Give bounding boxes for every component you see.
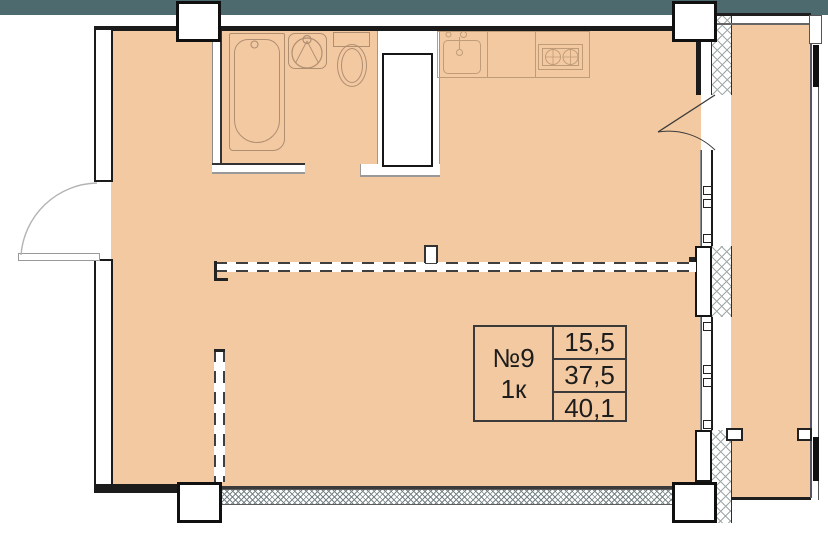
balcony-bottom-wall (731, 497, 811, 500)
balcony-top-wall (711, 13, 811, 16)
bathtub (234, 39, 280, 143)
counter-divider (535, 31, 536, 78)
window-sash-icon (703, 186, 712, 195)
toilet-bowl-inner (341, 48, 363, 83)
balcony-corner-post (809, 15, 822, 44)
area-general: 37,5 (554, 360, 625, 393)
entry-door-leaf (18, 253, 100, 261)
left-wall-upper (94, 28, 113, 182)
window-upper (701, 150, 713, 246)
entry-door-arc (21, 183, 97, 255)
wall-pylon-lower (695, 430, 712, 482)
window-sash-icon (703, 234, 712, 243)
unit-number: №9 (492, 343, 534, 374)
partition-end-cap-horizontal (214, 278, 228, 281)
bathroom-bottom-wall (212, 163, 305, 174)
partition-top-cap (214, 349, 225, 352)
bottom-wall-hatched (222, 489, 675, 505)
dashed-partition-horizontal (215, 262, 696, 272)
dashed-partition-vertical (214, 350, 225, 482)
window-sash-icon (703, 322, 712, 331)
column-bottom-left (177, 482, 222, 523)
vent-shaft (382, 53, 433, 167)
unit-id-cell: №9 1к (475, 327, 554, 420)
area-living: 15,5 (554, 327, 625, 360)
column-top-left (176, 1, 221, 42)
balcony-window-bar-bottom (813, 437, 819, 481)
glazing-tab-left (726, 428, 743, 441)
bottom-wall-left (94, 484, 178, 493)
right-wall-segment (696, 42, 701, 95)
exterior-wall-hatch-middle (711, 246, 732, 317)
partition-tick-tab (424, 245, 438, 263)
unit-rooms-label: 1к (501, 374, 527, 405)
kitchen-sink (443, 40, 481, 74)
window-sash-icon (703, 378, 712, 387)
area-total: 40,1 (554, 393, 625, 424)
window-sash-icon (703, 199, 712, 208)
balcony-top-inner-line (711, 23, 811, 25)
counter-divider (487, 31, 488, 78)
balcony-window-bar-top (813, 45, 819, 87)
unit-area-column: 15,5 37,5 40,1 (554, 327, 625, 420)
window-lower (701, 317, 713, 430)
window-sash-icon (703, 420, 712, 429)
column-bottom-right (672, 482, 717, 523)
column-top-right (672, 1, 717, 42)
unit-info-table: №9 1к 15,5 37,5 40,1 (473, 325, 627, 422)
balcony-glazing-outer-line (818, 45, 819, 500)
floorplan-canvas: №9 1к 15,5 37,5 40,1 (0, 0, 828, 534)
window-sash-icon (703, 365, 712, 374)
wall-pylon-middle (695, 246, 712, 317)
stove-inner (542, 48, 579, 66)
left-wall-lower (94, 259, 113, 488)
bottom-floor-edge (222, 486, 675, 489)
washbasin (288, 33, 327, 69)
glazing-tab-right (797, 428, 812, 441)
bathroom-left-wall (212, 31, 222, 174)
